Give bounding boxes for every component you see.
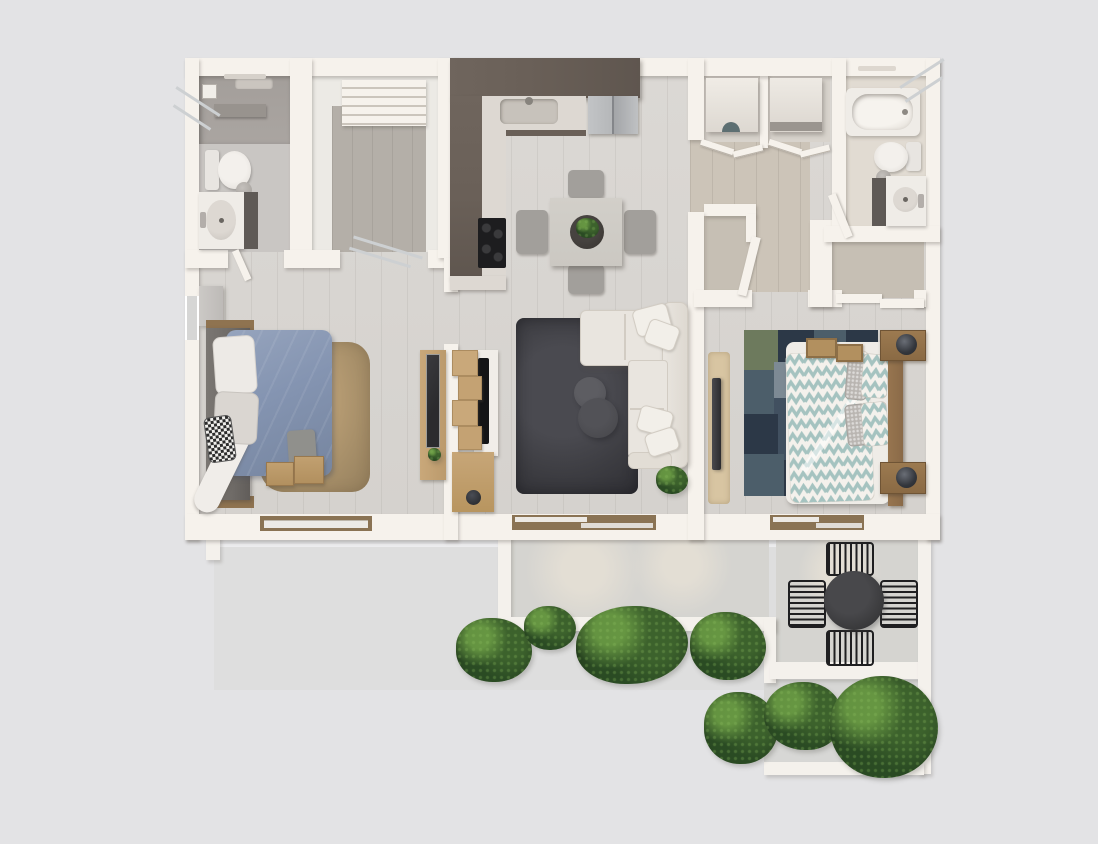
desk-plant [428,448,441,461]
shrub [524,606,576,650]
dryer-controls [770,122,822,131]
bathroom1-right-wall [290,58,312,258]
shower-bench [214,104,266,117]
toilet-tank [906,142,921,171]
dining-chair [516,210,548,254]
bistro-chair-left [788,580,826,628]
shower-drain [235,78,273,89]
laundry-divider-wall [760,72,768,148]
serving-tray [836,344,863,362]
potted-plant [656,466,688,494]
vanity-faucet [200,212,206,228]
dining-chair [624,210,656,254]
table-lamp [896,467,917,488]
bistro-chair-bottom [826,630,874,666]
dining-chair [568,170,604,198]
coffee-table-large [578,398,618,438]
entry-floor [332,106,426,252]
serving-tray [806,338,837,358]
vanity-cabinet [872,178,887,226]
dining-corridor-wall-upper [688,58,704,140]
dining-chair [568,264,604,294]
media-shelf-box [452,350,478,376]
shrub [830,676,938,778]
table-lamp [896,334,917,355]
outer-wall-right [926,58,940,540]
floor-plan-canvas [0,0,1098,844]
rug-patch [744,330,778,370]
centerpiece-plant [576,218,599,238]
living-sliding-panel [515,517,587,522]
wall-seg [185,250,228,268]
bistro-chair-right [880,580,918,628]
staircase [342,80,426,126]
media-shelf-box [452,400,478,426]
chevron-pillow [860,401,890,447]
sink-faucet [525,97,533,105]
toilet-tank [205,150,219,190]
wood-ottoman [294,456,324,484]
closet-sliding-panel [880,299,924,308]
bedroom2-sliding-panel [816,523,862,528]
living-bedroom2-wall [688,212,704,540]
toilet-bowl [874,142,908,172]
bed-pillow [212,335,258,396]
bedroom1-window-glass [264,520,368,528]
sofa-seam [624,314,626,360]
vanity-faucet [918,194,924,208]
living-sliding-panel [581,523,653,528]
desk-mirror [426,354,440,448]
bistro-table [824,571,884,630]
media-shelf-box [458,426,482,450]
floor-mirror [712,378,721,470]
towel-bar [858,66,896,71]
wall-seg [284,250,340,268]
bathtub-drain [902,109,908,115]
shower-control [202,84,217,99]
rug-patch [744,370,774,414]
counter-edge [506,130,586,136]
towel-bar [224,74,266,79]
refrigerator-divider [612,96,614,134]
sink-drain [219,218,224,223]
sink-drain [903,197,908,202]
cooktop [478,218,506,268]
closet-floor [832,242,924,298]
cabinet-run-top [450,58,640,98]
vanity-cabinet [244,192,258,249]
closet-sliding-panel [836,294,882,303]
speaker [466,490,481,505]
bedroom2-sliding-panel [773,517,819,522]
side-window [185,296,199,340]
counter-end-cap [450,276,506,290]
rug-patch [744,414,778,454]
shrub [456,618,532,682]
wood-ottoman [266,462,294,486]
rug-patch [744,454,784,496]
shrub [690,612,766,680]
media-shelf-box [458,376,482,400]
